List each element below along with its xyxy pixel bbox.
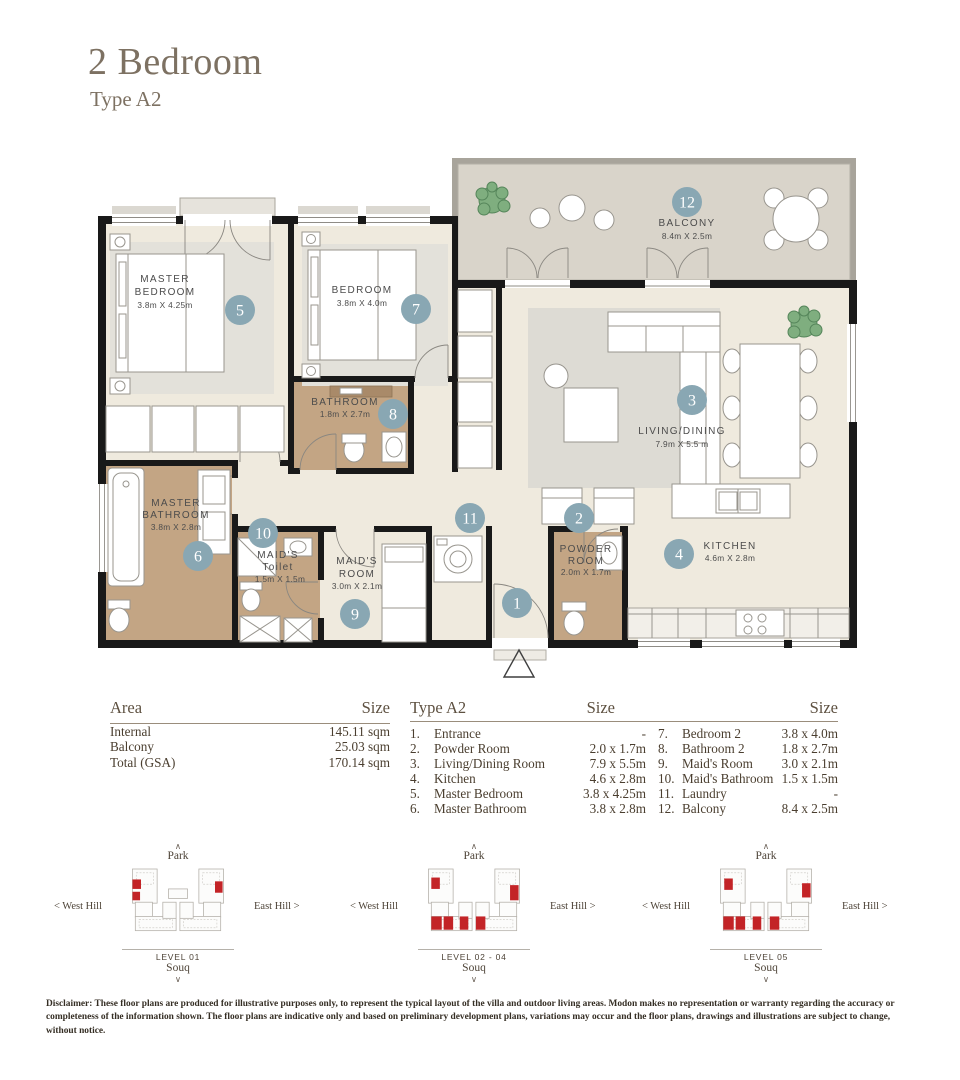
badge-maids-room: 9 (340, 599, 370, 629)
item-size: 3.0 x 2.1m (782, 757, 838, 772)
item-no: 4. (410, 772, 434, 787)
balcony-label: BALCONY (659, 218, 716, 229)
disclaimer-text: Disclaimer: These floor plans are produc… (46, 998, 918, 1038)
item-size: 3.8 x 2.8m (590, 802, 646, 817)
type-table: Type A2 Size Size 1.Entrance- 2.Powder R… (410, 698, 838, 816)
master-bedroom-dims: 3.8m X 4.25m (137, 300, 192, 310)
item-name: Bathroom 2 (682, 742, 782, 757)
svg-text:10: 10 (255, 526, 271, 543)
item-no: 9. (658, 757, 682, 772)
item-name: Powder Room (434, 742, 590, 757)
badge-bathroom: 8 (378, 399, 408, 429)
area-table: Area Size Internal 145.11 sqm Balcony 25… (110, 698, 390, 770)
balcony-dims: 8.4m X 2.5m (662, 231, 712, 241)
chevron-left-icon: < (642, 901, 648, 912)
item-size: 3.8 x 4.25m (583, 787, 646, 802)
list-item: 3.Living/Dining Room7.9 x 5.5m (410, 757, 646, 772)
location-diagram-level-01: ∧ Park < West Hill East Hill > LEVEL 01 … (50, 842, 306, 983)
list-item: 8.Bathroom 21.8 x 2.7m (658, 742, 838, 757)
kitchen-island (672, 484, 790, 518)
item-name: Balcony (682, 802, 782, 817)
master-bathroom-label: MASTER (151, 498, 200, 509)
page-title: 2 Bedroom (88, 40, 262, 84)
chevron-up-icon: ∧ (50, 842, 306, 850)
chevron-up-icon: ∧ (346, 842, 602, 850)
badge-balcony: 12 (672, 187, 702, 217)
item-name: Kitchen (434, 772, 590, 787)
type-header-size: Size (410, 698, 615, 718)
svg-text:1: 1 (513, 596, 521, 613)
item-no: 1. (410, 727, 434, 742)
kitchen-counter (628, 608, 849, 638)
chevron-right-icon: > (590, 901, 596, 912)
item-name: Entrance (434, 727, 642, 742)
list-item: 10.Maid's Bathroom1.5 x 1.5m (658, 772, 838, 787)
maids-room-label2: ROOM (339, 569, 375, 580)
list-item: 7.Bedroom 23.8 x 4.0m (658, 727, 838, 742)
area-row-label: Total (GSA) (110, 755, 175, 770)
type-table-header: Type A2 Size Size (410, 698, 838, 722)
powder-room-label: POWDER (560, 544, 613, 555)
list-item: 4.Kitchen4.6 x 2.8m (410, 772, 646, 787)
area-row-label: Balcony (110, 739, 154, 754)
badge-living: 3 (677, 385, 707, 415)
item-size: 3.8 x 4.0m (782, 727, 838, 742)
chevron-up-icon: ∧ (638, 842, 894, 850)
page-subtitle: Type A2 (90, 87, 262, 112)
item-no: 7. (658, 727, 682, 742)
badge-bedroom: 7 (401, 294, 431, 324)
master-bedroom-label2: BEDROOM (135, 287, 196, 298)
location-diagram-level-02-04: ∧ Park < West Hill East Hill > LEVEL 02 … (346, 842, 602, 983)
park-label: Park (50, 850, 306, 863)
bedroom-label: BEDROOM (332, 285, 393, 296)
item-size: 7.9 x 5.5m (590, 757, 646, 772)
svg-text:2: 2 (575, 511, 583, 528)
powder-room-label2: ROOM (568, 556, 604, 567)
item-no: 6. (410, 802, 434, 817)
west-hill-label: < West Hill (346, 901, 400, 912)
list-item: 5.Master Bedroom3.8 x 4.25m (410, 787, 646, 802)
area-row-size: 170.14 sqm (328, 755, 390, 770)
chevron-left-icon: < (54, 901, 60, 912)
park-label: Park (638, 850, 894, 863)
table-row: Total (GSA) 170.14 sqm (110, 755, 390, 770)
area-header-size: Size (362, 698, 390, 718)
item-no: 11. (658, 787, 682, 802)
level-label: LEVEL 01 (122, 949, 234, 962)
badge-powder: 2 (564, 503, 594, 533)
dining-set (723, 344, 817, 478)
list-item: 2.Powder Room2.0 x 1.7m (410, 742, 646, 757)
west-hill-label: < West Hill (50, 901, 104, 912)
area-header-label: Area (110, 698, 142, 718)
item-name: Master Bedroom (434, 787, 583, 802)
item-no: 8. (658, 742, 682, 757)
item-name: Living/Dining Room (434, 757, 590, 772)
side-table (544, 364, 568, 388)
list-item: 11.Laundry- (658, 787, 838, 802)
badge-maids-toilet: 10 (248, 518, 278, 548)
floor-plan: MASTER BEDROOM 3.8m X 4.25m BEDROOM 3.8m… (90, 156, 872, 686)
east-hill-label: East Hill > (252, 901, 306, 912)
bedroom-dims: 3.8m X 4.0m (337, 298, 387, 308)
item-name: Maid's Room (682, 757, 782, 772)
park-label: Park (346, 850, 602, 863)
svg-text:8: 8 (389, 407, 397, 424)
maids-room-dims: 3.0m X 2.1m (332, 581, 382, 591)
chevron-down-icon: ∨ (346, 975, 602, 983)
svg-text:6: 6 (194, 549, 202, 566)
east-hill-label: East Hill > (840, 901, 894, 912)
item-name: Bedroom 2 (682, 727, 782, 742)
item-no: 5. (410, 787, 434, 802)
brochure-page: 2 Bedroom Type A2 (0, 0, 960, 1080)
table-row: Internal 145.11 sqm (110, 724, 390, 739)
master-bed (110, 234, 224, 394)
svg-text:3: 3 (688, 393, 696, 410)
item-name: Laundry (682, 787, 834, 802)
list-item: 1.Entrance- (410, 727, 646, 742)
maids-toilet-label: MAID'S (257, 550, 298, 561)
list-item: 12.Balcony8.4 x 2.5m (658, 802, 838, 817)
living-dining-dims: 7.9m X 5.5 m (656, 439, 709, 449)
item-size: 1.5 x 1.5m (782, 772, 838, 787)
chevron-right-icon: > (294, 901, 300, 912)
table-row: Balcony 25.03 sqm (110, 739, 390, 754)
badge-entrance: 1 (502, 588, 532, 618)
kitchen-label: KITCHEN (704, 541, 757, 552)
type-table-right-column: 7.Bedroom 23.8 x 4.0m 8.Bathroom 21.8 x … (658, 727, 838, 816)
level-label: LEVEL 05 (710, 949, 822, 962)
badge-laundry: 11 (455, 503, 485, 533)
item-name: Master Bathroom (434, 802, 590, 817)
badge-kitchen: 4 (664, 539, 694, 569)
item-no: 2. (410, 742, 434, 757)
item-size: - (642, 727, 646, 742)
powder-room-dims: 2.0m X 1.7m (561, 567, 611, 577)
list-item: 9.Maid's Room3.0 x 2.1m (658, 757, 838, 772)
master-bedroom-label: MASTER (140, 274, 189, 285)
bathroom-dims: 1.8m X 2.7m (320, 409, 370, 419)
maids-room-label: MAID'S (336, 556, 377, 567)
item-name: Maid's Bathroom (682, 772, 782, 787)
item-size: 8.4 x 2.5m (782, 802, 838, 817)
item-no: 10. (658, 772, 682, 787)
svg-text:12: 12 (679, 195, 695, 212)
west-hill-label: < West Hill (638, 901, 692, 912)
area-row-size: 145.11 sqm (329, 724, 390, 739)
chevron-right-icon: > (882, 901, 888, 912)
washing-machine (434, 536, 482, 582)
maids-toilet-label2: Toilet (262, 562, 293, 573)
area-row-size: 25.03 sqm (335, 739, 390, 754)
building-footprint (104, 864, 252, 948)
east-hill-label: East Hill > (548, 901, 602, 912)
badge-master-bathroom: 6 (183, 541, 213, 571)
kitchen-dims: 4.6m X 2.8m (705, 553, 755, 563)
type-table-left-column: 1.Entrance- 2.Powder Room2.0 x 1.7m 3.Li… (410, 727, 646, 816)
chevron-down-icon: ∨ (50, 975, 306, 983)
bathroom-label: BATHROOM (311, 397, 378, 408)
master-bathroom-dims: 3.8m X 2.8m (151, 522, 201, 532)
item-size: - (834, 787, 838, 802)
title-block: 2 Bedroom Type A2 (88, 40, 262, 112)
type-header-size2: Size (810, 698, 838, 718)
chevron-left-icon: < (350, 901, 356, 912)
area-row-label: Internal (110, 724, 151, 739)
building-footprint (692, 864, 840, 948)
item-size: 1.8 x 2.7m (782, 742, 838, 757)
chevron-down-icon: ∨ (638, 975, 894, 983)
master-bathroom-label2: BATHROOM (142, 510, 209, 521)
tree-icon (788, 306, 822, 338)
maids-bed (382, 544, 426, 642)
area-table-header: Area Size (110, 698, 390, 724)
coffee-table (564, 388, 618, 442)
building-footprint (400, 864, 548, 948)
living-dining-label: LIVING/DINING (638, 426, 725, 437)
maids-toilet-dims: 1.5m X 1.5m (255, 574, 305, 584)
svg-text:7: 7 (412, 302, 420, 319)
svg-text:5: 5 (236, 303, 244, 320)
item-size: 4.6 x 2.8m (590, 772, 646, 787)
location-diagram-level-05: ∧ Park < West Hill East Hill > LEVEL 05 … (638, 842, 894, 983)
svg-text:11: 11 (462, 511, 477, 528)
svg-text:4: 4 (675, 547, 683, 564)
list-item: 6.Master Bathroom3.8 x 2.8m (410, 802, 646, 817)
item-no: 12. (658, 802, 682, 817)
svg-text:9: 9 (351, 607, 359, 624)
item-size: 2.0 x 1.7m (590, 742, 646, 757)
badge-master-bedroom: 5 (225, 295, 255, 325)
item-no: 3. (410, 757, 434, 772)
level-label: LEVEL 02 - 04 (418, 949, 530, 962)
